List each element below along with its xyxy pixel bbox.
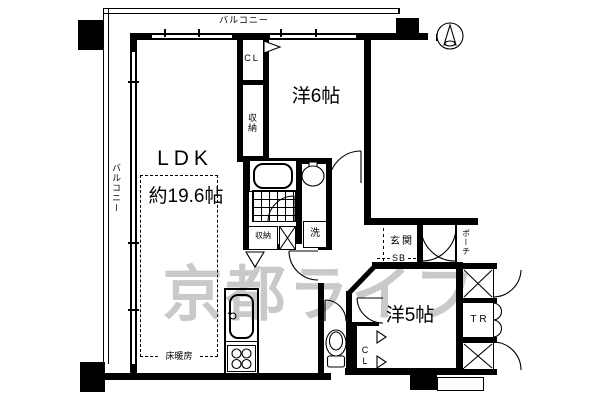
toilet-bowl-inner xyxy=(330,332,343,350)
door-arc-toilet xyxy=(325,300,346,321)
x-brace-storage-bottom xyxy=(464,344,492,368)
door-arc-w6 xyxy=(329,151,361,183)
door-triangle-cl5-b xyxy=(377,356,386,368)
closet-w5-label: CL xyxy=(358,343,371,369)
x-brace-pipe-space xyxy=(280,227,295,249)
trunk-room-label: TR xyxy=(467,313,493,327)
door-triangle-cl5-a xyxy=(377,331,386,343)
chamfer-wall xyxy=(349,266,375,293)
door-arc-ldk xyxy=(289,251,318,280)
compass-base xyxy=(445,41,455,46)
floor-heating-label: 床暖房 xyxy=(158,350,200,362)
plan-symbols xyxy=(0,0,600,400)
door-arc-entrance xyxy=(421,227,456,261)
porch-label: ポーチ xyxy=(459,224,472,260)
door-arc-bath xyxy=(268,196,294,222)
stove-burner xyxy=(242,360,251,369)
door-triangle-storage xyxy=(246,252,264,267)
door-arc-storage-right-top xyxy=(493,270,521,297)
x-brace-storage-top xyxy=(464,270,492,297)
stove-burner xyxy=(232,360,241,369)
stove-burner xyxy=(232,349,241,358)
laundry-label: 洗 xyxy=(306,227,324,241)
storage-bath-label: 収納 xyxy=(249,230,277,241)
ldk-size-label: 約19.6帖 xyxy=(130,184,242,208)
door-triangle-cl-top xyxy=(264,41,280,53)
sink-drain xyxy=(230,313,236,319)
floor-plan-canvas: SB xyxy=(0,0,600,400)
western5-label: 洋5帖 xyxy=(375,303,445,327)
wash-basin xyxy=(302,166,324,186)
stove-burner xyxy=(242,349,251,358)
door-arc-storage-right-bottom xyxy=(493,342,521,370)
toilet-base xyxy=(328,356,345,367)
door-arc-trunk xyxy=(493,303,502,337)
